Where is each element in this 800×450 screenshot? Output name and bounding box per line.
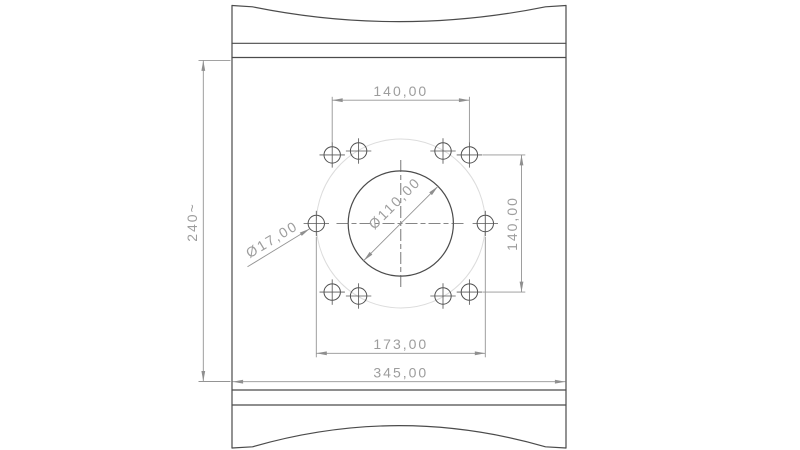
dimension-plate-width: 345,00 bbox=[233, 365, 566, 384]
plate-top-curve bbox=[232, 6, 566, 22]
dim-right-height-label: 140,00 bbox=[504, 196, 520, 251]
plate-bottom-curve bbox=[232, 426, 566, 448]
bolt-hole bbox=[430, 283, 455, 308]
dim-plate-height-label: 240~ bbox=[184, 202, 200, 242]
dim-top-width-label: 140,00 bbox=[373, 83, 428, 99]
bolt-hole bbox=[473, 211, 498, 236]
dimension-hole-diameter: Ø17,00 bbox=[243, 217, 311, 266]
drawing-sheet: 140,00 140,00 173,00 345,00 240~ bbox=[0, 0, 800, 450]
dim-plate-width-label: 345,00 bbox=[373, 365, 428, 381]
drawing-canvas: 140,00 140,00 173,00 345,00 240~ bbox=[0, 0, 800, 450]
dimension-plate-height: 240~ bbox=[184, 60, 231, 381]
bolt-hole bbox=[346, 283, 371, 308]
bolt-hole bbox=[346, 138, 371, 163]
bolt-hole bbox=[304, 211, 329, 236]
dim-hole-span-label: 173,00 bbox=[373, 336, 428, 352]
bolt-hole bbox=[430, 138, 455, 163]
dimension-top-width: 140,00 bbox=[332, 83, 469, 143]
